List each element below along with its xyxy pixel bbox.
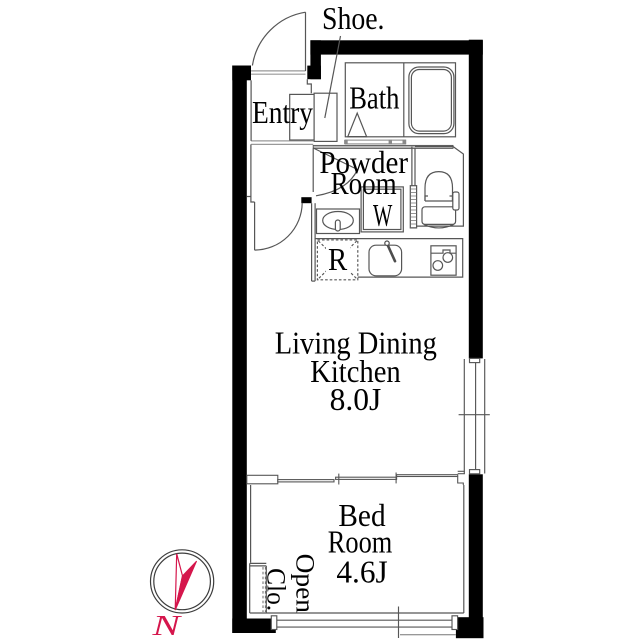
svg-text:4.6J: 4.6J: [336, 554, 387, 590]
svg-text:Open: Open: [290, 554, 319, 613]
svg-text:Shoe.: Shoe.: [322, 0, 385, 36]
svg-text:8.0J: 8.0J: [330, 381, 382, 417]
svg-text:W: W: [373, 197, 393, 233]
svg-text:Room: Room: [331, 165, 397, 201]
svg-text:Entry: Entry: [252, 94, 313, 130]
svg-text:R: R: [328, 241, 348, 277]
svg-text:N: N: [151, 609, 182, 640]
svg-text:Bath: Bath: [349, 79, 399, 115]
svg-text:Clo.: Clo.: [261, 568, 290, 611]
